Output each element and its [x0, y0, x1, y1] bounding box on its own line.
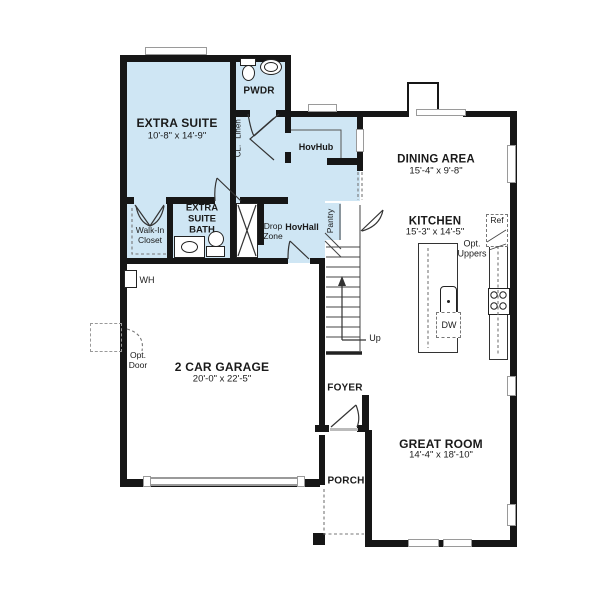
door-swing-pantry	[361, 210, 383, 231]
wall	[365, 430, 372, 547]
porch-label: PORCH	[327, 475, 364, 487]
great-room-dims: 14'-4" x 18'-10"	[409, 451, 473, 462]
dining-area-dims: 15'-4" x 9'-8"	[409, 167, 462, 178]
wall	[319, 258, 325, 430]
wall	[357, 425, 369, 432]
front-door-threshold	[330, 428, 358, 431]
window	[507, 145, 516, 183]
water-heater-label: WH	[140, 275, 155, 285]
water-heater	[124, 270, 137, 288]
extra-suite-dims: 10'-8" x 14'-9"	[148, 132, 206, 143]
porch-post	[313, 533, 325, 545]
opt-uppers-label: Opt. Uppers	[451, 239, 493, 260]
chimney-outline	[407, 82, 439, 112]
toilet-bowl	[242, 65, 255, 81]
shower	[236, 203, 258, 258]
optional-door-swing	[127, 329, 142, 351]
floor-plan-canvas: EXTRA SUITE 10'-8" x 14'-9" PWDR HovHub …	[0, 0, 600, 589]
wall	[319, 435, 325, 485]
drop-zone-label: Drop Zone	[257, 222, 289, 242]
pwdr-label: PWDR	[243, 85, 274, 97]
wall	[120, 197, 134, 204]
door-swing-front	[331, 405, 359, 427]
walk-in-closet-label: Walk-In Closet	[125, 226, 175, 246]
dishwasher-label: DW	[442, 320, 457, 330]
hovhub-label: HovHub	[299, 142, 334, 152]
range	[488, 288, 510, 315]
wall	[327, 158, 363, 165]
ref-label: Ref	[490, 216, 503, 226]
window	[416, 109, 466, 116]
window	[145, 47, 207, 55]
extra-suite-label: EXTRA SUITE	[136, 117, 217, 131]
wall	[285, 55, 291, 117]
window	[443, 539, 472, 547]
pass-through-niche	[356, 129, 364, 152]
toilet-tank	[206, 246, 225, 257]
extra-suite-bath-label: EXTRA SUITE BATH	[179, 204, 225, 237]
cl-label: CL.	[233, 145, 242, 157]
wall	[230, 110, 250, 117]
island-sink-drain	[447, 300, 450, 303]
wall	[120, 258, 288, 264]
opt-door-label: Opt. Door	[123, 351, 153, 371]
stairs-up-label: Up	[369, 333, 381, 343]
wall	[310, 258, 325, 264]
garage-door-end	[297, 476, 305, 487]
window	[507, 504, 516, 526]
vanity-sink	[181, 241, 198, 253]
garage-dims: 20'-0" x 22'-5"	[193, 375, 251, 386]
window	[308, 104, 337, 112]
wall	[357, 111, 409, 117]
sink-basin	[264, 62, 278, 72]
wall	[276, 110, 285, 117]
wall	[365, 540, 517, 547]
kitchen-dims: 15'-3" x 14'-5"	[406, 228, 464, 239]
window	[507, 376, 516, 396]
wall	[463, 111, 517, 117]
garage-door-end	[143, 476, 151, 487]
wall	[362, 395, 369, 426]
wall	[285, 117, 291, 133]
wall	[285, 152, 291, 163]
foyer-label: FOYER	[327, 382, 362, 394]
window	[408, 539, 439, 547]
garage-door	[145, 477, 300, 486]
optional-door-pad	[90, 323, 122, 352]
hovhall-label: HovHall	[285, 222, 319, 232]
stairs-up-arrow	[338, 276, 366, 340]
linen-label: Linen	[233, 119, 242, 139]
pantry-label: Pantry	[326, 209, 336, 234]
